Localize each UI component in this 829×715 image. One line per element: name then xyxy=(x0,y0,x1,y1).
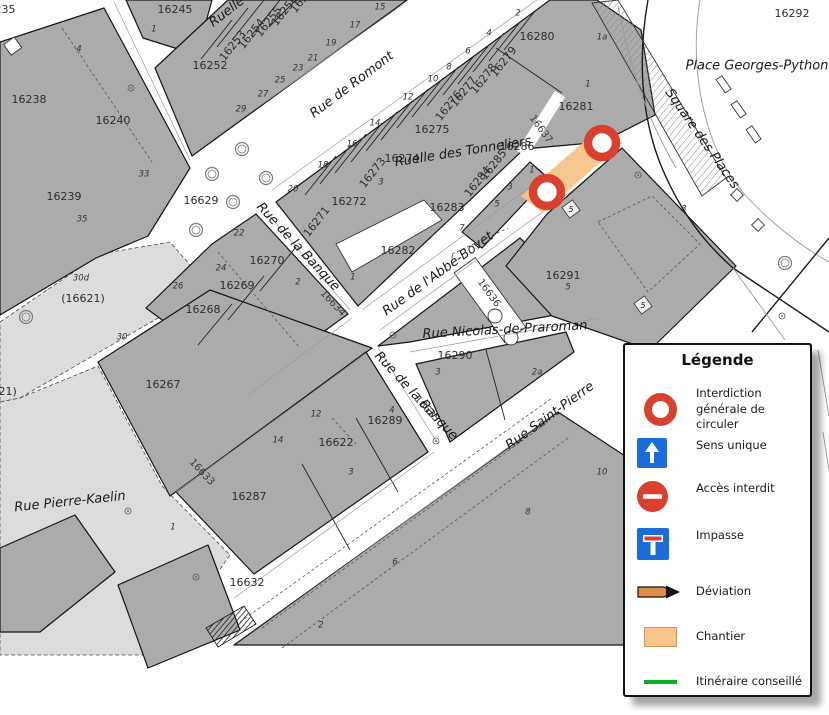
detour-icon xyxy=(637,584,683,600)
house-number: 4 xyxy=(389,406,394,416)
parcel-label: 16282 xyxy=(381,244,416,257)
house-number: 17 xyxy=(350,21,361,31)
house-number: 30 xyxy=(117,333,128,343)
parcel-label: 16239 xyxy=(47,190,82,203)
legend-item-no-traffic: Interdiction générale de circuler xyxy=(637,386,802,433)
no-traffic-ring-icon xyxy=(644,393,677,426)
street-point-marker-dot xyxy=(435,440,437,442)
street-point-marker-dot xyxy=(637,174,639,176)
house-number: 14 xyxy=(370,119,381,129)
house-number: 10 xyxy=(428,75,439,85)
tree-icon xyxy=(192,226,200,234)
house-number: 3 xyxy=(681,205,686,215)
house-number: 7 xyxy=(459,224,465,234)
house-number: 35 xyxy=(77,215,88,225)
parcel-label: 16245 xyxy=(158,3,193,16)
road-closure-sign xyxy=(533,178,561,206)
parcel-label: 16270 xyxy=(250,254,285,267)
house-number: 2 xyxy=(515,9,520,19)
parcel-label: (16621) xyxy=(61,292,105,305)
legend-item-route: Itinéraire conseillé xyxy=(637,672,802,692)
parcel-label: 16287 xyxy=(232,490,267,503)
street-point-marker-dot xyxy=(195,576,197,578)
house-number: 1 xyxy=(350,273,355,283)
house-number: 4 xyxy=(76,45,81,55)
parcel-label: 16238 xyxy=(12,93,47,106)
street-point-marker-dot xyxy=(130,87,132,89)
house-number: 8 xyxy=(446,63,452,73)
legend-item-label: Interdiction générale de circuler xyxy=(696,386,802,433)
svg-text:5: 5 xyxy=(568,205,573,214)
house-number: 3 xyxy=(435,368,440,378)
legend-item-label: Accès interdit xyxy=(696,481,775,497)
house-number: 2a xyxy=(532,368,543,378)
house-number: 21 xyxy=(308,54,319,64)
house-number: 5 xyxy=(494,200,499,210)
house-number: 1 xyxy=(151,25,156,35)
legend-item-label: Itinéraire conseillé xyxy=(696,674,802,690)
house-number: 15 xyxy=(375,3,386,13)
house-number: 30d xyxy=(73,274,90,284)
house-number: 1 xyxy=(170,523,175,533)
tree-icon xyxy=(208,170,216,178)
house-number: 14 xyxy=(273,436,284,446)
house-number: 27 xyxy=(258,90,269,100)
parcel-label: 16289 xyxy=(368,414,403,427)
house-number: 22 xyxy=(234,229,245,239)
house-number: 3 xyxy=(507,183,512,193)
legend-item-label: Impasse xyxy=(696,528,744,544)
parcel-label: 16269 xyxy=(220,279,255,292)
legend-panel: Légende Interdiction générale de circule… xyxy=(623,343,812,697)
parcel-label: 16275 xyxy=(415,123,450,136)
worksite-icon xyxy=(644,627,677,647)
house-number: 12 xyxy=(311,410,322,420)
house-number: 3 xyxy=(348,468,353,478)
dead-end-icon xyxy=(637,528,669,560)
parcel-label: 16292 xyxy=(775,7,810,20)
one-way-icon xyxy=(637,438,667,468)
parcel-label: 16291 xyxy=(546,269,581,282)
parcel-label: 16272 xyxy=(332,195,367,208)
parcel-label: (16621) xyxy=(0,385,17,398)
house-number: 29 xyxy=(236,105,247,115)
tree-icon xyxy=(260,172,273,185)
house-number: 10 xyxy=(597,468,608,478)
legend-item-label: Déviation xyxy=(696,584,751,600)
parcel-label: 16268 xyxy=(186,303,221,316)
house-number: 16 xyxy=(347,140,358,150)
tree-icon xyxy=(229,198,237,206)
house-number: 6 xyxy=(392,558,398,568)
parcel-label: 16622 xyxy=(319,436,354,449)
street-point-marker-dot xyxy=(781,315,783,317)
tree-icon xyxy=(262,174,270,182)
parcel-label: 16290 xyxy=(438,349,473,362)
tree-icon xyxy=(227,196,240,209)
house-number: 1a xyxy=(597,33,608,43)
legend-item-one-way: Sens unique xyxy=(637,438,802,454)
house-number: 1 xyxy=(585,80,590,90)
tree-icon xyxy=(236,143,249,156)
parcel-label: 16267 xyxy=(146,378,181,391)
street-name-label: Place Georges-Python xyxy=(686,59,829,74)
street-point-marker-dot xyxy=(127,510,129,512)
house-number: 2 xyxy=(318,621,323,631)
parcel-label: 16235 xyxy=(0,3,16,16)
tree-icon xyxy=(190,224,203,237)
parcel-label: 16632 xyxy=(230,576,265,589)
house-number: 26 xyxy=(173,282,184,292)
legend-item-label: Chantier xyxy=(696,629,745,645)
parcel-label: 16240 xyxy=(96,114,131,127)
legend-title: Légende xyxy=(625,351,810,369)
street-point-marker-dot xyxy=(392,334,394,336)
house-number: 25 xyxy=(275,76,286,86)
parcel-label: 16281 xyxy=(559,100,594,113)
parcel-label: 16629 xyxy=(184,194,219,207)
house-number: 23 xyxy=(293,64,304,74)
house-number: 19 xyxy=(326,39,337,49)
tree-icon xyxy=(238,145,246,153)
legend-item-label: Sens unique xyxy=(696,438,767,454)
house-number: 6 xyxy=(465,47,471,57)
road-closure-sign xyxy=(588,129,616,157)
house-number: 20 xyxy=(288,185,299,195)
house-number: 2 xyxy=(295,278,300,288)
house-number: 8 xyxy=(525,508,531,518)
house-number: 4 xyxy=(486,29,491,39)
parcel-label: 16283 xyxy=(430,201,465,214)
house-number: 18 xyxy=(318,161,329,171)
parcel-label: 16280 xyxy=(520,30,555,43)
house-number: 1 xyxy=(529,166,534,176)
house-number: 24 xyxy=(216,264,227,274)
house-number: 3 xyxy=(378,178,383,188)
route-icon xyxy=(644,680,677,684)
construction-map-screenshot: 1623516245162521623816240162391662916253… xyxy=(0,0,829,715)
house-number: 33 xyxy=(139,170,150,180)
legend-item-dead-end: Impasse xyxy=(637,528,802,544)
tree-icon xyxy=(781,259,789,267)
house-number: 12 xyxy=(403,93,414,103)
legend-item-no-entry: Accès interdit xyxy=(637,481,802,497)
legend-item-detour: Déviation xyxy=(637,584,802,600)
legend-item-worksite: Chantier xyxy=(637,627,802,647)
svg-text:5: 5 xyxy=(640,301,645,310)
house-number: 5 xyxy=(565,283,570,293)
tree-icon xyxy=(779,257,792,270)
no-entry-icon xyxy=(637,481,668,512)
tree-icon xyxy=(206,168,219,181)
